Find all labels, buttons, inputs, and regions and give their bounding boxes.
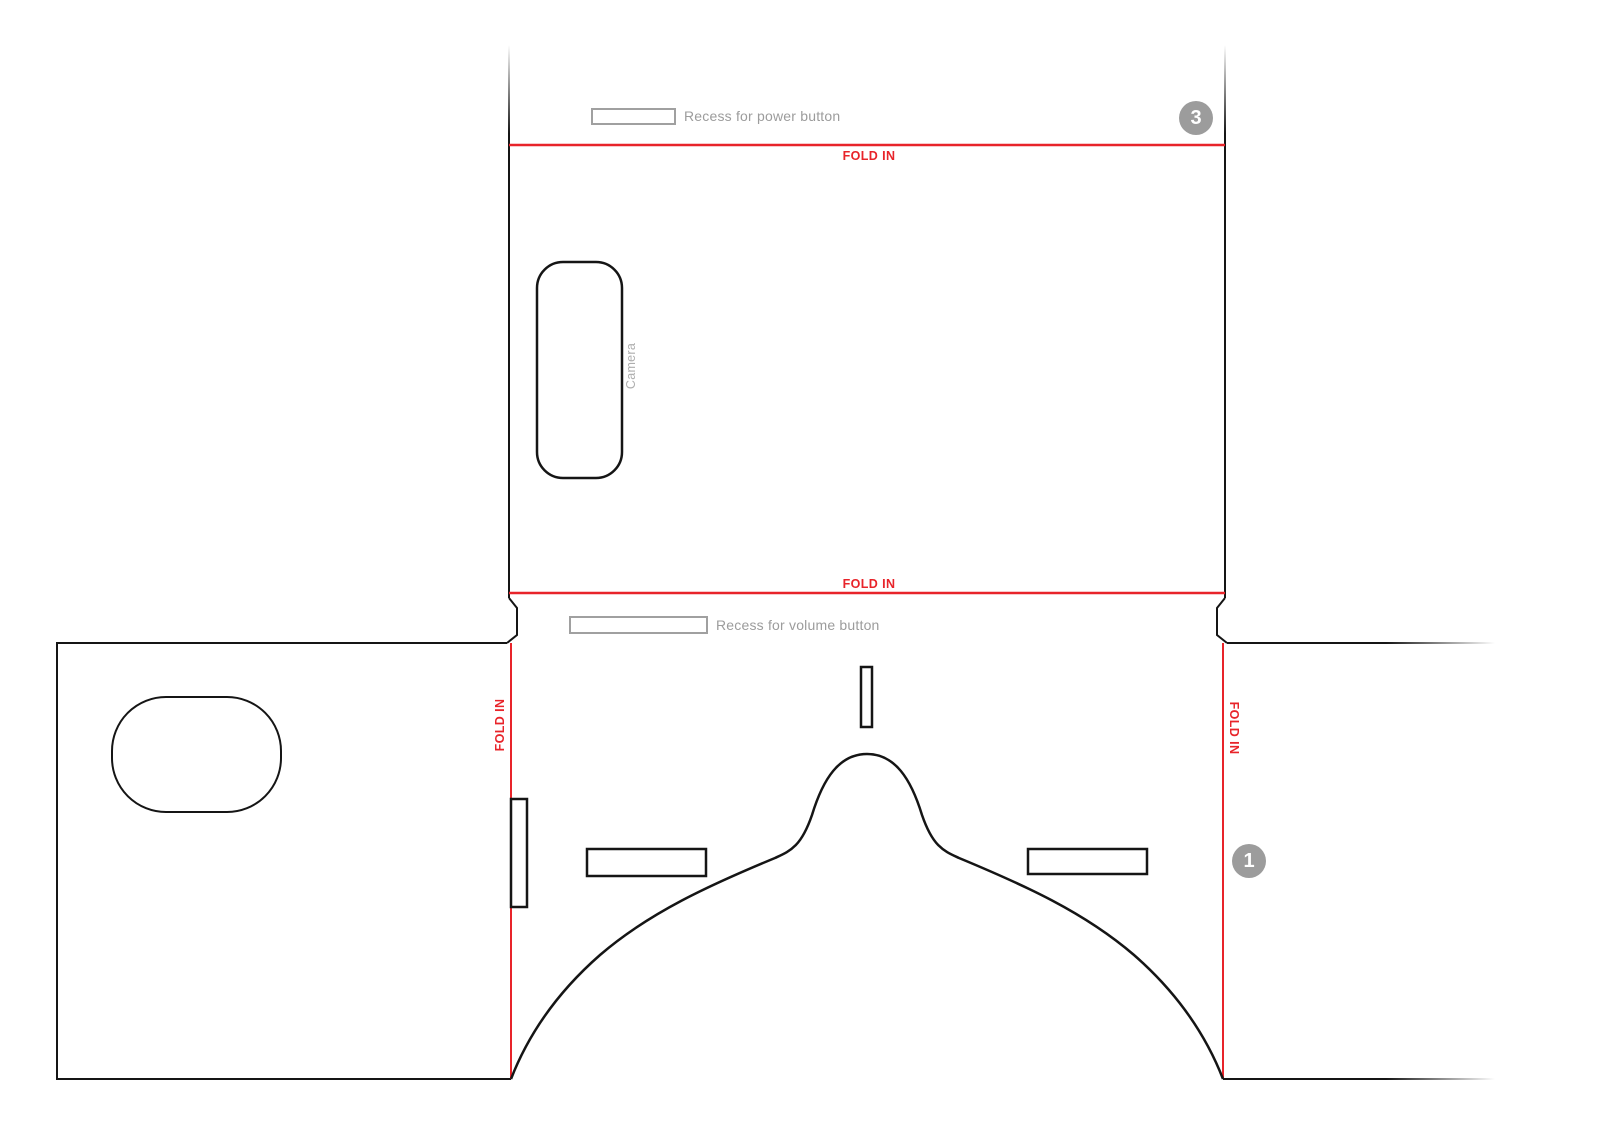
template-linework [0, 0, 1600, 1131]
fold-in-label-middle: FOLD IN [843, 577, 896, 591]
center-vertical-slot [861, 667, 872, 727]
camera-label: Camera [624, 343, 638, 389]
fold-in-label-left: FOLD IN [493, 699, 507, 752]
right-notch-edge [1217, 598, 1227, 643]
left-notch-edge [507, 598, 517, 643]
right-horizontal-slot [1028, 849, 1147, 874]
cardboard-template-diagram: FOLD IN FOLD IN FOLD IN FOLD IN Recess f… [0, 0, 1600, 1131]
face-curve-cutout [511, 754, 1223, 1079]
step-badge-3: 3 [1179, 101, 1213, 135]
volume-recess-label: Recess for volume button [716, 617, 880, 633]
power-recess-label: Recess for power button [684, 109, 840, 124]
left-horizontal-slot [587, 849, 706, 876]
fold-in-label-top: FOLD IN [843, 149, 896, 163]
camera-cutout [537, 262, 622, 478]
volume-button-recess-outline [570, 617, 707, 633]
fold-in-label-right: FOLD IN [1227, 702, 1241, 755]
left-panel-outline [57, 643, 511, 1079]
eye-hole-cutout [112, 697, 281, 812]
step-badge-1: 1 [1232, 844, 1266, 878]
side-tab-slot [511, 799, 527, 907]
power-button-recess-outline [592, 109, 675, 124]
